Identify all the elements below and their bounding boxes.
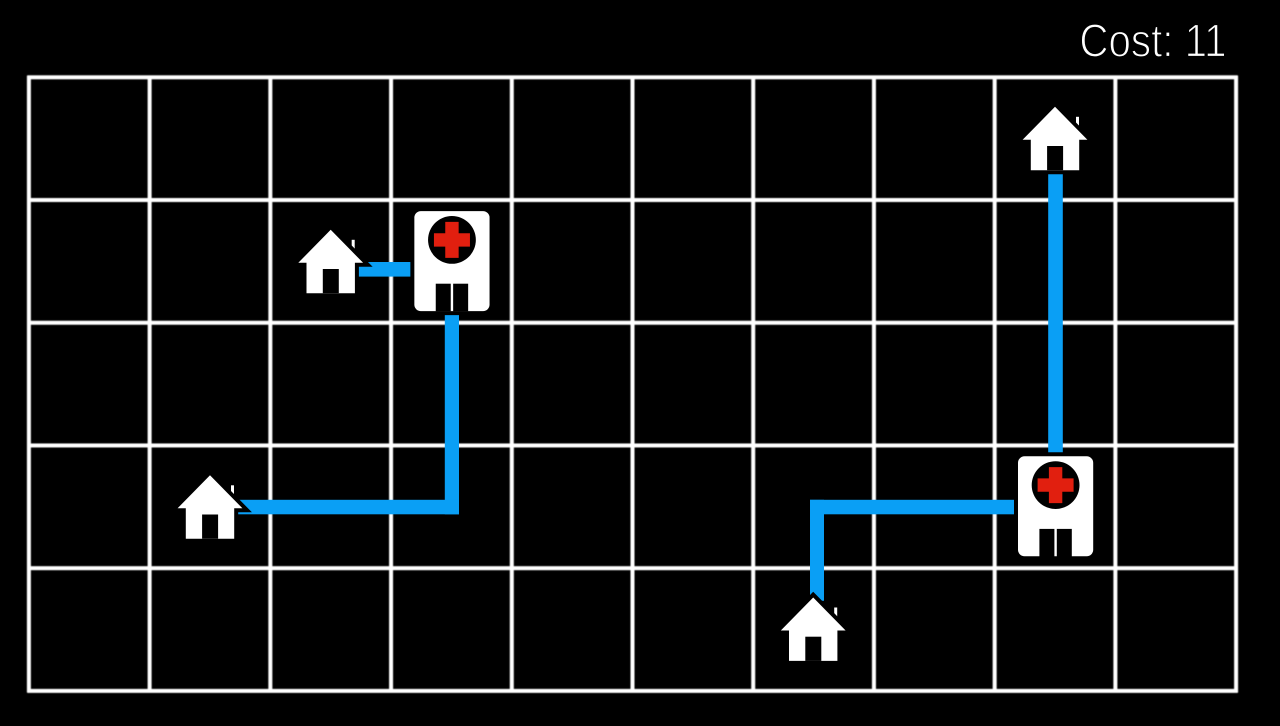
svg-text:Cost: 11: Cost: 11 [1079, 16, 1226, 67]
